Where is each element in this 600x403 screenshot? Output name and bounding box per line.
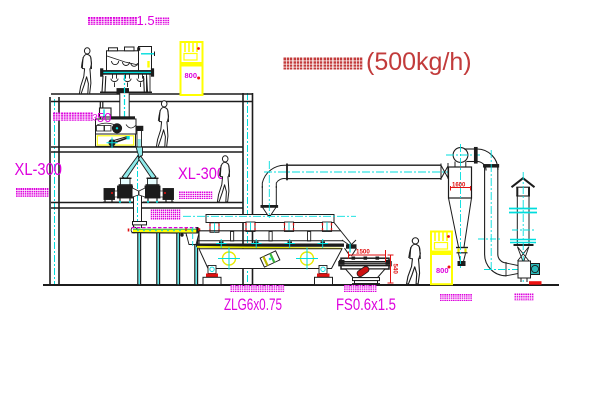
svg-text:1600: 1600 — [452, 183, 466, 189]
svg-text:800: 800 — [436, 266, 449, 275]
svg-text:XL-300: XL-300 — [178, 164, 225, 183]
svg-text:800: 800 — [185, 71, 198, 80]
svg-text:1.5: 1.5 — [137, 13, 155, 28]
svg-text:540: 540 — [391, 264, 398, 275]
svg-text:ZLG6x0.75: ZLG6x0.75 — [224, 295, 282, 314]
svg-text:XL-300: XL-300 — [15, 159, 63, 179]
svg-text:FS0.6x1.5: FS0.6x1.5 — [336, 295, 396, 314]
svg-text:(500kg/h): (500kg/h) — [366, 48, 472, 76]
svg-text:1500: 1500 — [356, 249, 370, 256]
svg-text:50: 50 — [97, 110, 111, 125]
